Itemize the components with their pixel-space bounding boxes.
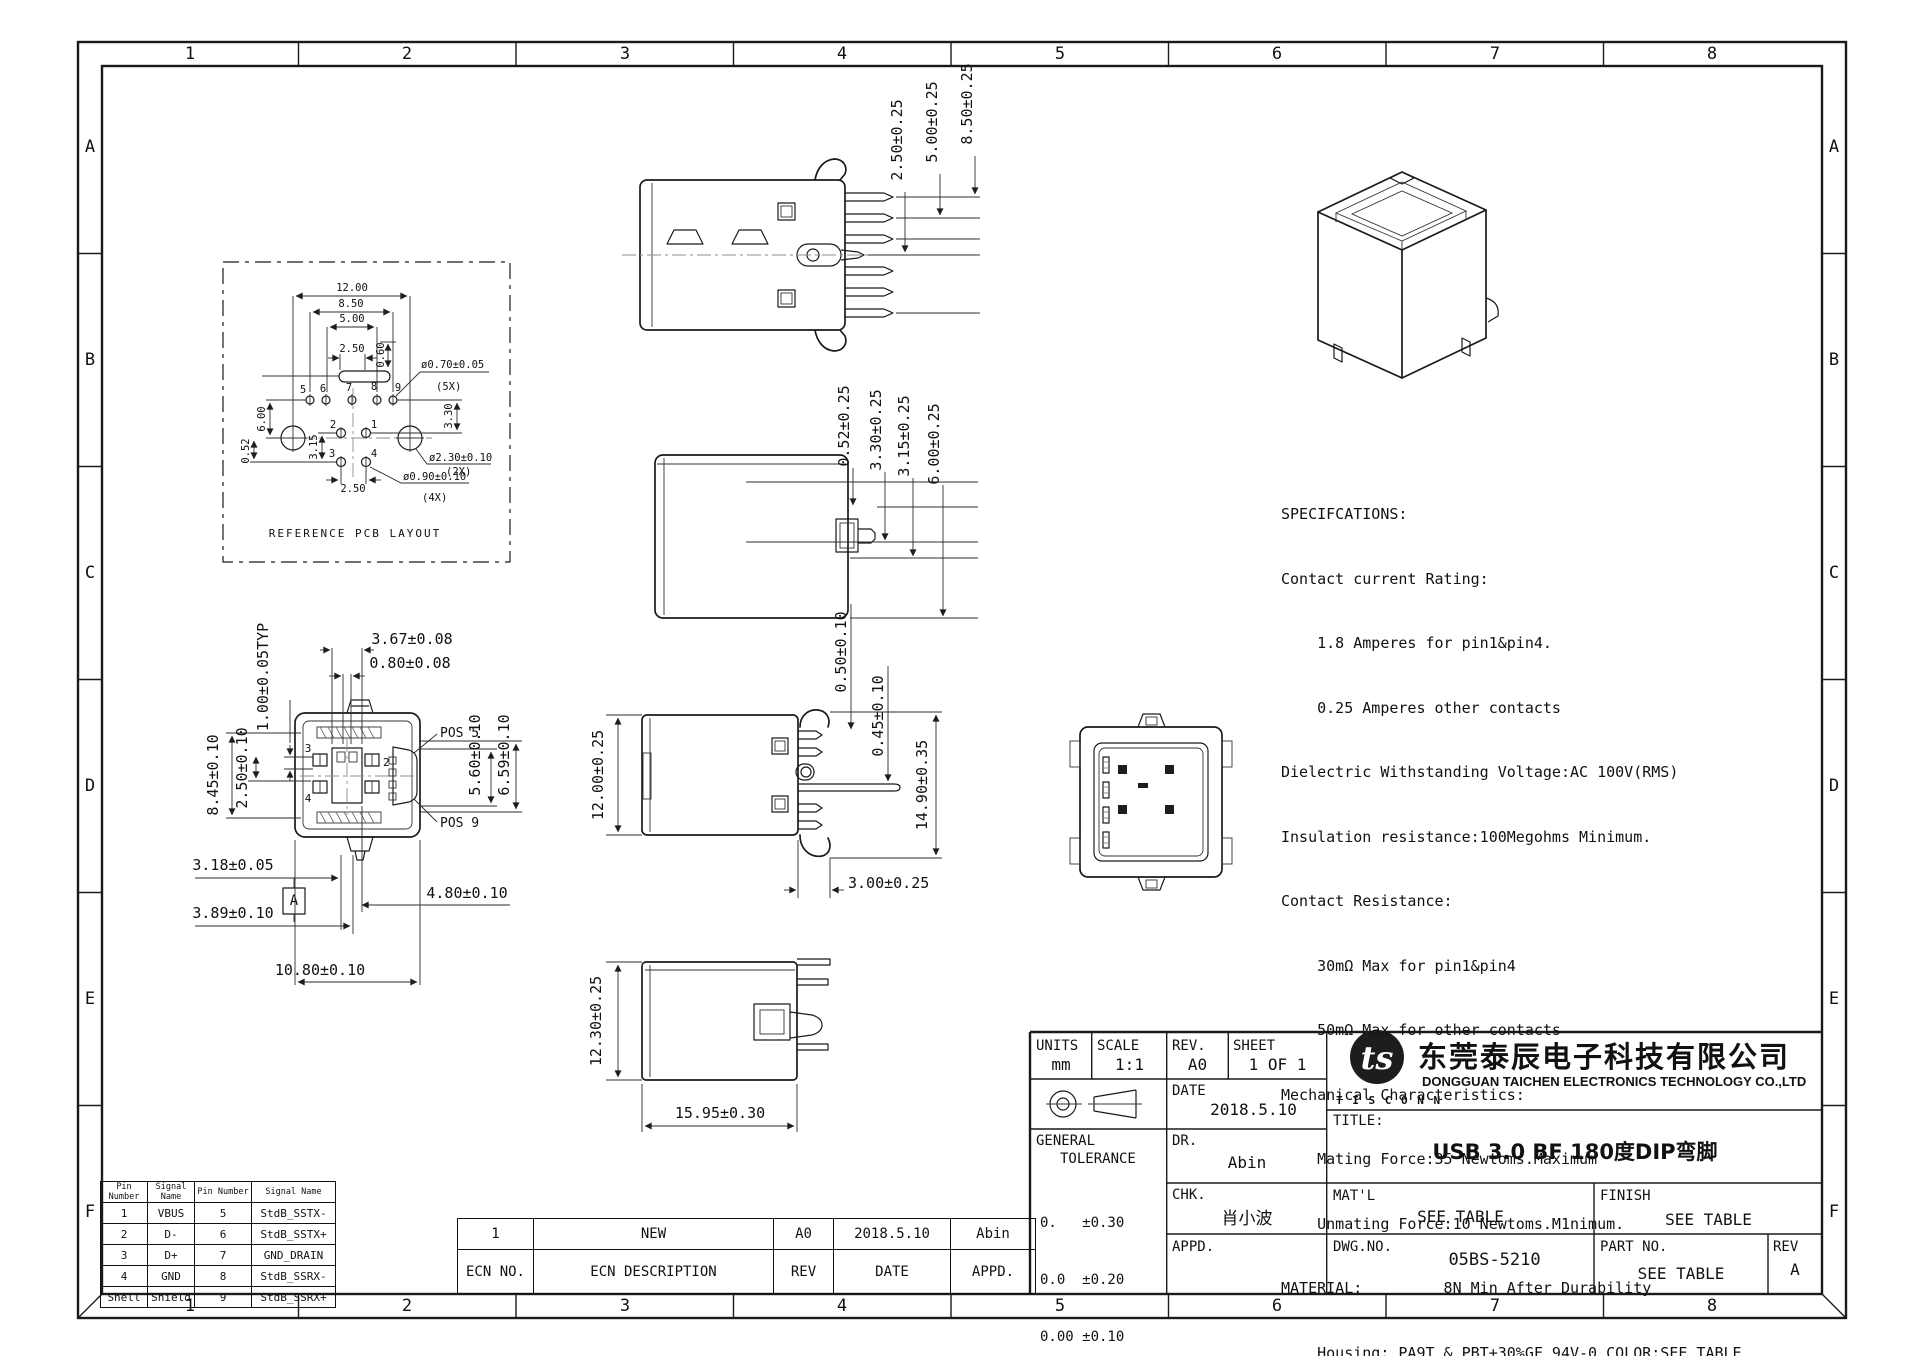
dr-value: Abin (1167, 1153, 1327, 1172)
general-tolerance-label: GENERAL (1036, 1133, 1095, 1149)
dim-label: 3.15±0.25 (895, 395, 913, 476)
hole-qty: (5X) (436, 381, 461, 393)
dim-label: 3.30 (443, 403, 455, 428)
table-row: 4 GND 8 StdB_SSRX- (101, 1266, 336, 1287)
pin-table-header: Signal Name (148, 1182, 195, 1203)
finish-value: SEE TABLE (1594, 1210, 1823, 1229)
grid-col-label: 2 (402, 1296, 412, 1316)
grid-col-label: 3 (620, 44, 630, 64)
pin-cell: StdB_SSRX- (252, 1266, 336, 1287)
rear-contact-slots (1103, 757, 1109, 848)
pin-number: 7 (346, 382, 352, 394)
dim-label: 0.52±0.25 (835, 385, 853, 466)
dim-label: 12.00 (336, 282, 368, 294)
dim-label: 2.50±0.10 (233, 727, 251, 808)
pin-number: 6 (320, 383, 326, 395)
grid-row-label: F (1829, 1202, 1839, 1222)
grid-col-label: 5 (1055, 44, 1065, 64)
pin-cell: D+ (148, 1245, 195, 1266)
hole-callout: ø2.30±0.10 (429, 452, 492, 464)
dim-label: 5.00 (339, 313, 364, 325)
hole-callout: ø0.90±0.10 (403, 471, 466, 483)
dim-label: 6.00 (256, 406, 268, 431)
drawing-sheet: 1 2 3 4 5 6 7 8 1 2 3 4 5 6 7 8 A B C D … (0, 0, 1920, 1356)
grid-row-label: A (85, 137, 95, 157)
ecn-entry-appd: Abin (951, 1219, 1036, 1250)
matl-label: MAT'L (1333, 1188, 1375, 1204)
dim-label: 0.80±0.08 (369, 654, 450, 672)
partno-label: PART NO. (1600, 1239, 1667, 1255)
pin-cell: StdB_SSTX+ (252, 1224, 336, 1245)
title-label: TITLE: (1333, 1113, 1384, 1129)
dim-label: 3.89±0.10 (192, 904, 273, 922)
pin-table-header: Signal Name (252, 1182, 336, 1203)
dim-label: 10.80±0.10 (275, 961, 365, 979)
dim-label: 3.00±0.25 (848, 874, 929, 892)
ecn-header-rev: REV (774, 1250, 834, 1294)
grid-col-label: 3 (620, 1296, 630, 1316)
pin-number: 1 (371, 419, 377, 431)
dim-label: 2.50±0.25 (888, 99, 906, 180)
mating-face-view: 3 2 4 POS 5 POS 9 3.67±0.08 0.80±0.08 1.… (192, 623, 522, 985)
scale-value: 1:1 (1092, 1055, 1167, 1074)
dim-label: 2.50 (340, 483, 365, 495)
pin-cell: 8 (195, 1266, 252, 1287)
grid-row-label: D (85, 776, 95, 796)
spec-line: Insulation resistance:100Megohms Minimum… (1281, 827, 1742, 849)
dim-label: 6.00±0.25 (925, 403, 943, 484)
pin-number: 9 (395, 382, 401, 394)
ecn-entry-description: NEW (534, 1219, 774, 1250)
company-name-en: DONGGUAN TAICHEN ELECTRONICS TECHNOLOGY … (1422, 1074, 1806, 1089)
dim-label: 14.90±0.35 (913, 740, 931, 830)
pin-cell: VBUS (148, 1203, 195, 1224)
pcb-caption: REFERENCE PCB LAYOUT (269, 527, 441, 540)
dim-label: 3.15 (308, 434, 320, 459)
dim-label: 8.45±0.10 (204, 734, 222, 815)
dim-label: 15.95±0.30 (675, 1104, 765, 1122)
ecn-entry-no: 1 (458, 1219, 534, 1250)
rear-solder-pads (1118, 765, 1174, 814)
date-value: 2018.5.10 (1180, 1100, 1327, 1119)
hole-qty: (4X) (422, 492, 447, 504)
bottom-view: 12.30±0.25 15.95±0.30 (587, 959, 830, 1132)
ecn-entry-date: 2018.5.10 (834, 1219, 951, 1250)
dim-label: 0.50±0.10 (832, 611, 850, 692)
dwgno-label: DWG.NO. (1333, 1239, 1392, 1255)
table-row: 3 D+ 7 GND_DRAIN (101, 1245, 336, 1266)
dim-label: 0.52 (240, 438, 252, 463)
dim-label: 5.60±0.10 (466, 714, 484, 795)
ecn-header-description: ECN DESCRIPTION (534, 1250, 774, 1294)
grid-col-label: 7 (1490, 44, 1500, 64)
dim-label: 8.50 (338, 298, 363, 310)
scale-label: SCALE (1097, 1038, 1139, 1054)
dim-label: 3.67±0.08 (371, 630, 452, 648)
pin-cell: 5 (195, 1203, 252, 1224)
pin-number: 8 (371, 381, 377, 393)
pin-number: 5 (300, 384, 306, 396)
grid-col-label: 6 (1272, 44, 1282, 64)
pin-cell: 7 (195, 1245, 252, 1266)
grid-row-label: E (85, 989, 95, 1009)
dim-label: 0.60 (375, 342, 387, 367)
tolerance-list: 0. ±0.30 0.0 ±0.20 0.00 ±0.10 0.° ±5 0.0… (1040, 1176, 1124, 1356)
ecn-entry-row: 1 NEW A0 2018.5.10 Abin (458, 1219, 1036, 1250)
spec-line: Contact Resistance: (1281, 891, 1742, 913)
pin-cell: Shield (148, 1287, 195, 1308)
table-row: 2 D- 6 StdB_SSTX+ (101, 1224, 336, 1245)
pin-cell: 4 (101, 1266, 148, 1287)
pin-number: 4 (305, 792, 312, 805)
units-value: mm (1030, 1055, 1092, 1074)
dim-label: 12.30±0.25 (587, 976, 605, 1066)
appd-label: APPD. (1172, 1239, 1214, 1255)
grid-col-label: 4 (837, 44, 847, 64)
matl-value: SEE TABLE (1327, 1207, 1594, 1226)
dim-label: 0.45±0.10 (869, 675, 887, 756)
datum-flag: A (290, 893, 299, 909)
grid-row-label: E (1829, 989, 1839, 1009)
pin-cell: StdB_SSTX- (252, 1203, 336, 1224)
ecn-entry-rev: A0 (774, 1219, 834, 1250)
pin-cell: 9 (195, 1287, 252, 1308)
pcb-layout-view: 12.00 8.50 5.00 2.50 0.60 ø0.70±0.05 (5X… (223, 262, 510, 562)
tolerance-line: 0. ±0.30 (1040, 1214, 1124, 1233)
pin-cell: 2 (101, 1224, 148, 1245)
rear-view (1070, 714, 1232, 890)
pin-number: 4 (371, 448, 377, 460)
pin-table-header: Pin Number (195, 1182, 252, 1203)
pin-assignment-table: Pin Number Signal Name Pin Number Signal… (100, 1181, 336, 1308)
company-name-cn: 东莞泰辰电子科技有限公司 (1418, 1034, 1790, 1076)
pcb-signal-holes (337, 427, 371, 468)
front-pin-view: 0.52±0.25 3.30±0.25 3.15±0.25 6.00±0.25 (655, 385, 978, 618)
pin-table-header: Pin Number (101, 1182, 148, 1203)
grid-col-label: 2 (402, 44, 412, 64)
ecn-header-appd: APPD. (951, 1250, 1036, 1294)
ecn-header-no: ECN NO. (458, 1250, 534, 1294)
date-label: DATE (1172, 1083, 1206, 1099)
general-tolerance-label-2: TOLERANCE (1060, 1151, 1136, 1167)
pin-cell: 1 (101, 1203, 148, 1224)
ecn-revision-table: 1 NEW A0 2018.5.10 Abin ECN NO. ECN DESC… (457, 1218, 1036, 1294)
grid-row-label: B (85, 350, 95, 370)
pin-number: 3 (305, 742, 312, 755)
dim-label: 3.30±0.25 (867, 389, 885, 470)
spec-line: 30mΩ Max for pin1&pin4 (1281, 956, 1742, 978)
pin-cell: 3 (101, 1245, 148, 1266)
hole-callout: ø0.70±0.05 (421, 359, 484, 371)
chk-value: 肖小波 (1167, 1204, 1327, 1229)
dim-label: 1.00±0.05TYP (254, 623, 272, 731)
drawing-title: USB 3.0 BF 180度DIP弯脚 (1327, 1136, 1823, 1166)
pin-cell: GND_DRAIN (252, 1245, 336, 1266)
spec-line: Contact current Rating: (1281, 569, 1742, 591)
grid-row-label: F (85, 1202, 95, 1222)
pin-cell: D- (148, 1224, 195, 1245)
projection-symbol (1046, 1090, 1142, 1118)
pin-cell: StdB_SSRX+ (252, 1287, 336, 1308)
pin-number: 3 (329, 448, 335, 460)
grid-row-label: B (1829, 350, 1839, 370)
spec-line: Housing: PA9T & PBT+30%GF 94V-0 COLOR:SE… (1281, 1343, 1742, 1356)
grid-row-label: A (1829, 137, 1839, 157)
dim-label: 5.00±0.25 (923, 81, 941, 162)
rev-value: A0 (1167, 1055, 1228, 1074)
chk-label: CHK. (1172, 1187, 1206, 1203)
table-row: 1 VBUS 5 StdB_SSTX- (101, 1203, 336, 1224)
dim-label: 2.50 (339, 343, 364, 355)
rev2-label: REV (1773, 1239, 1798, 1255)
partno-value: SEE TABLE (1594, 1264, 1768, 1283)
spec-line: 0.25 Amperes other contacts (1281, 698, 1742, 720)
tolerance-line: 0.0 ±0.20 (1040, 1271, 1124, 1290)
side-view: 12.00±0.25 0.50±0.10 0.45±0.10 14.90±0.3… (589, 604, 942, 898)
spec-line: 1.8 Amperes for pin1&pin4. (1281, 633, 1742, 655)
pin-cell: 6 (195, 1224, 252, 1245)
rev2-value: A (1768, 1260, 1822, 1279)
grid-col-label: 8 (1707, 44, 1717, 64)
pin-cell: GND (148, 1266, 195, 1287)
pin-number: 2 (330, 419, 336, 431)
grid-col-label: 1 (185, 44, 195, 64)
pcb-pin-holes (306, 394, 397, 406)
table-row: Shell Shield 9 StdB_SSRX+ (101, 1287, 336, 1308)
grid-col-label: 4 (837, 1296, 847, 1316)
grid-row-label: D (1829, 776, 1839, 796)
units-label: UNITS (1036, 1038, 1078, 1054)
finish-label: FINISH (1600, 1188, 1651, 1204)
grid-row-label: C (85, 563, 95, 583)
pos9-label: POS 9 (440, 816, 479, 831)
grid-row-label: C (1829, 563, 1839, 583)
dim-label: 12.00±0.25 (589, 730, 607, 820)
tolerance-line: 0.00 ±0.10 (1040, 1328, 1124, 1347)
dim-label: 4.80±0.10 (426, 884, 507, 902)
dim-label: 8.50±0.25 (958, 63, 976, 144)
spec-line: Dielectric Withstanding Voltage:AC 100V(… (1281, 762, 1742, 784)
dr-label: DR. (1172, 1133, 1197, 1149)
ecn-header-date: DATE (834, 1250, 951, 1294)
dim-label: 3.18±0.05 (192, 856, 273, 874)
top-view: 2.50±0.25 5.00±0.25 8.50±0.25 (622, 63, 980, 351)
dim-label: 6.59±0.10 (495, 714, 513, 795)
ecn-header-row: ECN NO. ECN DESCRIPTION REV DATE APPD. (458, 1250, 1036, 1294)
sheet-label: SHEET (1233, 1038, 1275, 1054)
spec-line: SPECIFCATIONS: (1281, 504, 1742, 526)
rev-label: REV. (1172, 1038, 1206, 1054)
isometric-view (1318, 172, 1498, 378)
pin-cell: Shell (101, 1287, 148, 1308)
dwgno-value: 05BS-5210 (1395, 1250, 1594, 1270)
sheet-value: 1 OF 1 (1228, 1055, 1327, 1074)
